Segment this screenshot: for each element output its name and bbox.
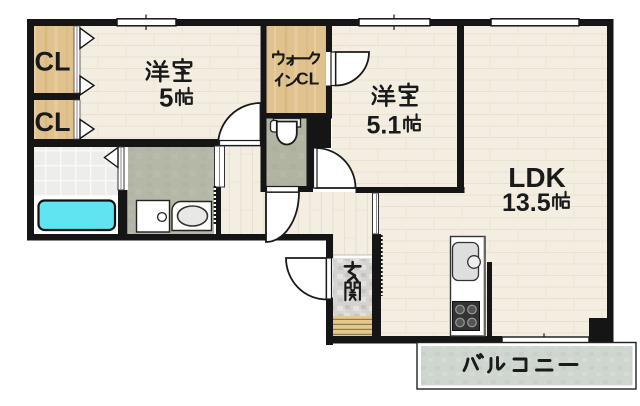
svg-text:13.5: 13.5 [502,189,551,217]
svg-text:5.1: 5.1 [367,112,402,140]
svg-text:CL: CL [296,69,320,89]
svg-text:5: 5 [159,83,173,113]
svg-text:CL: CL [35,107,71,137]
svg-text:CL: CL [35,47,71,77]
